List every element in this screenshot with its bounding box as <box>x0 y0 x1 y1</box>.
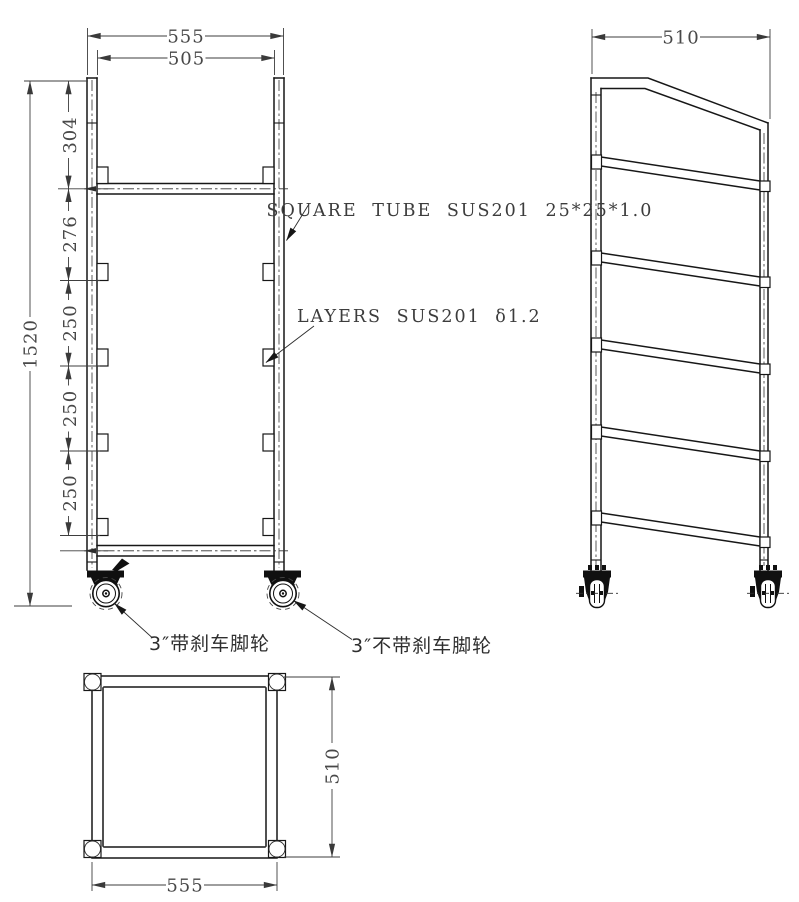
bottom-depth-dimension: 510 <box>284 677 344 857</box>
dim-segment-250-a: 250 <box>60 304 81 341</box>
front-bottom-crossbar <box>60 546 288 557</box>
annotations: SQUARE TUBE SUS201 25*25*1.0 LAYERS SUS2… <box>115 201 654 657</box>
bottom-view: 510 555 <box>84 674 344 897</box>
technical-drawing-canvas: 555 505 1520 304 <box>0 0 799 902</box>
dim-segment-304: 304 <box>60 116 81 153</box>
caster-side-front <box>747 565 789 608</box>
annotation-layer-spec: LAYERS SUS201 δ1.2 <box>297 307 542 327</box>
crossbar-ref-arrow <box>84 548 96 553</box>
dim-front-width-outer: 555 <box>167 27 204 48</box>
trolley-three-view-drawing: 555 505 1520 304 <box>0 0 799 902</box>
bottom-width-dimension: 555 <box>92 862 277 897</box>
dim-front-height-overall: 1520 <box>21 319 42 369</box>
caster-mounts-bottom <box>84 674 286 858</box>
brake-lever <box>112 559 130 572</box>
dim-segment-250-b: 250 <box>60 390 81 427</box>
front-view: 555 505 1520 304 <box>14 27 301 610</box>
annotation-caster-with-brake: 3″带刹车脚轮 <box>149 633 270 655</box>
caster-front-right-no-brake <box>264 571 301 610</box>
dim-side-depth: 510 <box>662 28 699 49</box>
caster-front-left-with-brake <box>87 559 130 610</box>
dim-bottom-depth: 510 <box>323 747 344 784</box>
front-right-upright <box>274 78 284 570</box>
annotation-tube-spec: SQUARE TUBE SUS201 25*25*1.0 <box>267 201 654 221</box>
crossbar-ref-arrow <box>84 186 96 191</box>
dim-bottom-width: 555 <box>166 876 203 897</box>
dim-segment-276: 276 <box>60 215 81 252</box>
dim-front-width-inner: 505 <box>168 49 205 70</box>
side-back-post <box>591 78 601 570</box>
side-depth-dimension: 510 <box>592 28 770 120</box>
front-left-upright <box>87 78 97 570</box>
caster-side-back <box>576 565 618 608</box>
dim-segment-250-c: 250 <box>60 474 81 511</box>
side-top-rail-inner <box>601 89 760 131</box>
front-width-dimensions: 555 505 <box>88 27 284 76</box>
front-shelf-brackets <box>97 167 274 536</box>
side-view: 510 <box>576 28 789 608</box>
front-top-crossbar <box>58 184 288 195</box>
annotation-caster-without-brake: 3″不带刹车脚轮 <box>351 635 492 657</box>
base-frame-outer <box>92 676 277 858</box>
